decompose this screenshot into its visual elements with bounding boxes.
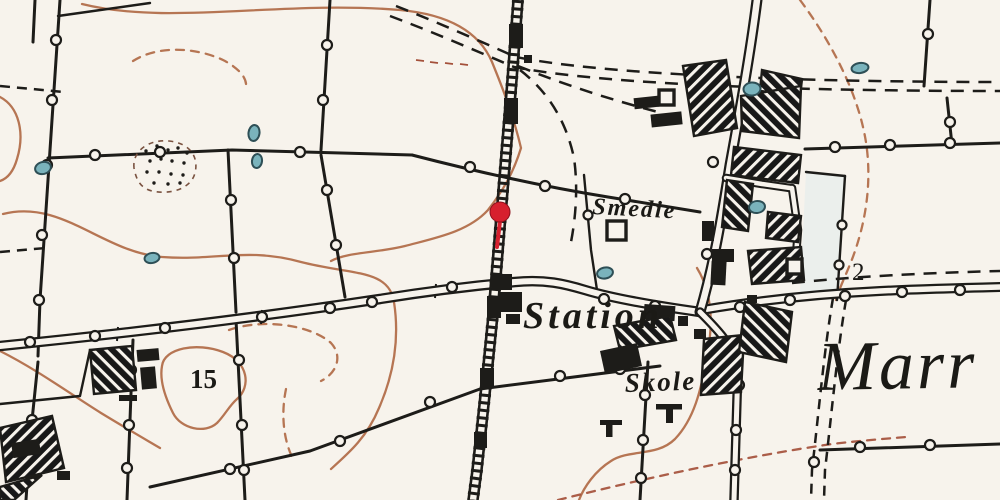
contour-tick-marks (416, 60, 468, 65)
location-pin[interactable] (490, 202, 510, 247)
map-viewport[interactable]: Smedie Station Skole Marr 15 2 (0, 0, 1000, 500)
label-field-number: 15 (190, 364, 217, 394)
label-skole: Skole (624, 366, 697, 398)
smithy-building-symbol (607, 221, 626, 240)
label-road-number: 2 (852, 259, 865, 286)
railway-line (469, 0, 533, 500)
farm-building-symbol (659, 90, 674, 105)
map-canvas[interactable]: Smedie Station Skole Marr 15 2 (0, 0, 1000, 500)
station-building (492, 274, 512, 290)
field-boundaries (0, 0, 1000, 500)
label-smedie: Smedie (592, 194, 677, 224)
roads (0, 0, 1000, 500)
label-station: Station (523, 295, 663, 337)
label-place-name: Marr (816, 326, 978, 406)
village-buildings (0, 60, 804, 500)
gate-symbols (600, 404, 682, 437)
